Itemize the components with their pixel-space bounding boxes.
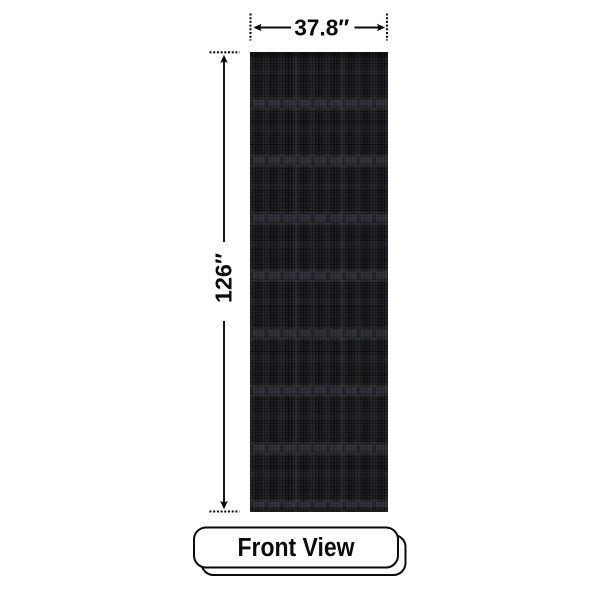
svg-text:Front View: Front View (238, 534, 355, 562)
svg-text:126″: 126″ (211, 253, 237, 303)
svg-text:37.8″: 37.8″ (294, 15, 349, 41)
